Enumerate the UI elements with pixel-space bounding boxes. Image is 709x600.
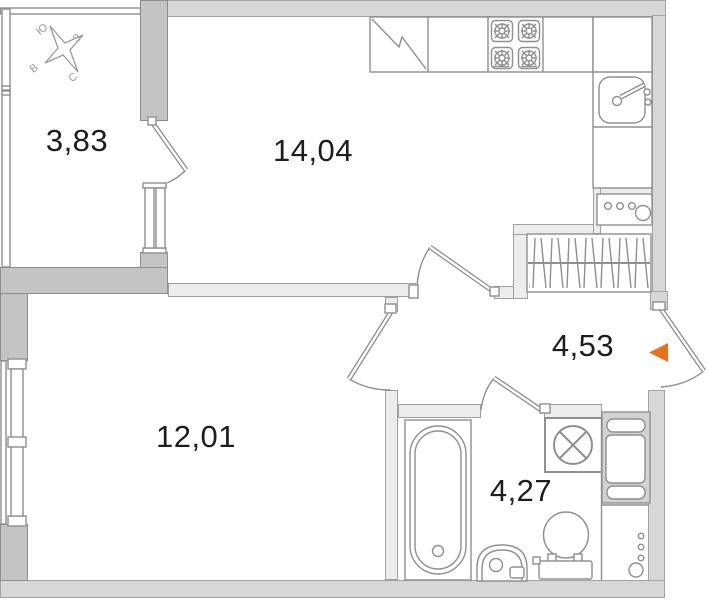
washbasin-symbol	[477, 545, 527, 581]
balcony-door	[148, 117, 186, 183]
bedroom-area-label: 12,01	[156, 419, 236, 455]
balcony-area-label: 3,83	[46, 123, 108, 159]
compass-north-label: С	[66, 70, 80, 84]
kitchen-counter-top	[370, 17, 593, 72]
fixtures-layer: Ю З В С	[0, 0, 709, 600]
toilet-symbol	[533, 512, 592, 579]
entrance-arrow-icon	[649, 343, 668, 362]
bathroom-area-label: 4,27	[490, 473, 552, 509]
entrance-door	[653, 302, 704, 387]
wardrobe-symbol	[527, 234, 651, 292]
appliance-panel-symbol	[597, 194, 652, 225]
bedroom-window	[1, 359, 26, 526]
kitchen-sink-symbol	[599, 77, 651, 123]
compass-rose-icon: Ю З В С	[28, 21, 84, 84]
ventilation-shaft	[602, 412, 650, 503]
floor-plan: Ю З В С 3,83 14,04 12,01 4,53 4,27	[0, 0, 709, 600]
bedroom-door	[349, 304, 396, 390]
bathroom-door	[481, 378, 550, 413]
compass-east-label: В	[28, 62, 41, 76]
bathtub-symbol	[405, 420, 471, 580]
balcony-front-wall	[1, 8, 141, 14]
compass-south-label: Ю	[34, 21, 50, 37]
kitchen-door	[409, 247, 499, 298]
hallway-area-label: 4,53	[552, 328, 614, 364]
washing-machine-symbol	[545, 418, 602, 472]
kitchen-balcony-window	[143, 183, 166, 253]
kitchen-area-label: 14,04	[273, 133, 353, 169]
balcony-side-window	[2, 9, 10, 267]
